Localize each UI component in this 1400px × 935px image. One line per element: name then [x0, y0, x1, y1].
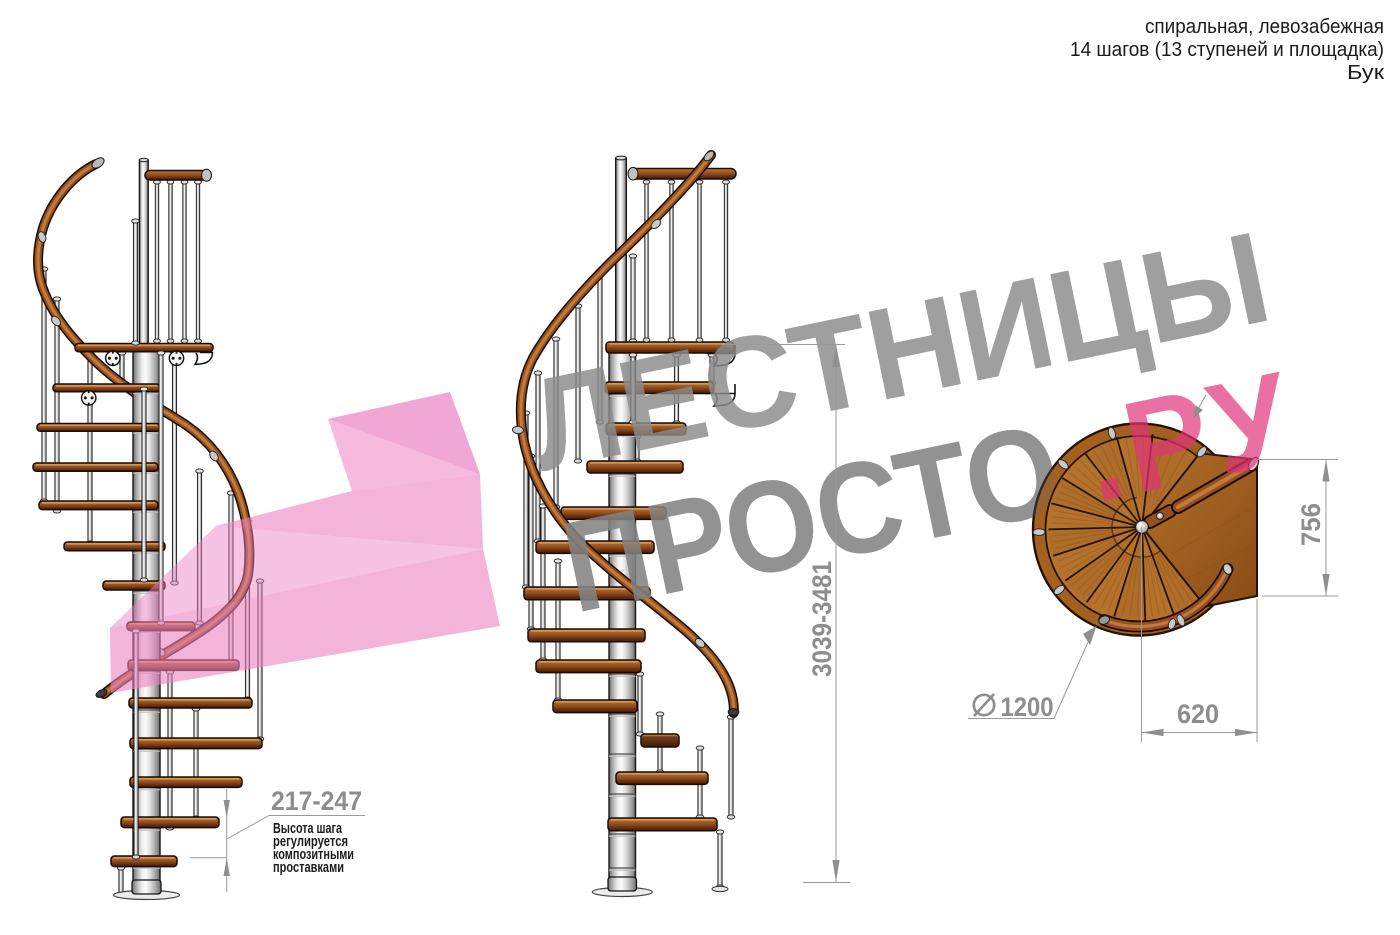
- svg-text:проставками: проставками: [273, 860, 344, 876]
- svg-text:217-247: 217-247: [271, 786, 362, 816]
- svg-text:756: 756: [1296, 503, 1326, 546]
- svg-text:14 шагов (13 ступеней и площад: 14 шагов (13 ступеней и площадка): [1070, 38, 1384, 61]
- svg-text:1200: 1200: [1001, 692, 1054, 722]
- svg-text:620: 620: [1177, 699, 1219, 729]
- svg-text:3039-3481: 3039-3481: [807, 561, 837, 677]
- svg-text:Бук: Бук: [1347, 61, 1385, 84]
- svg-text:спиральная, левозабежная: спиральная, левозабежная: [1145, 15, 1384, 38]
